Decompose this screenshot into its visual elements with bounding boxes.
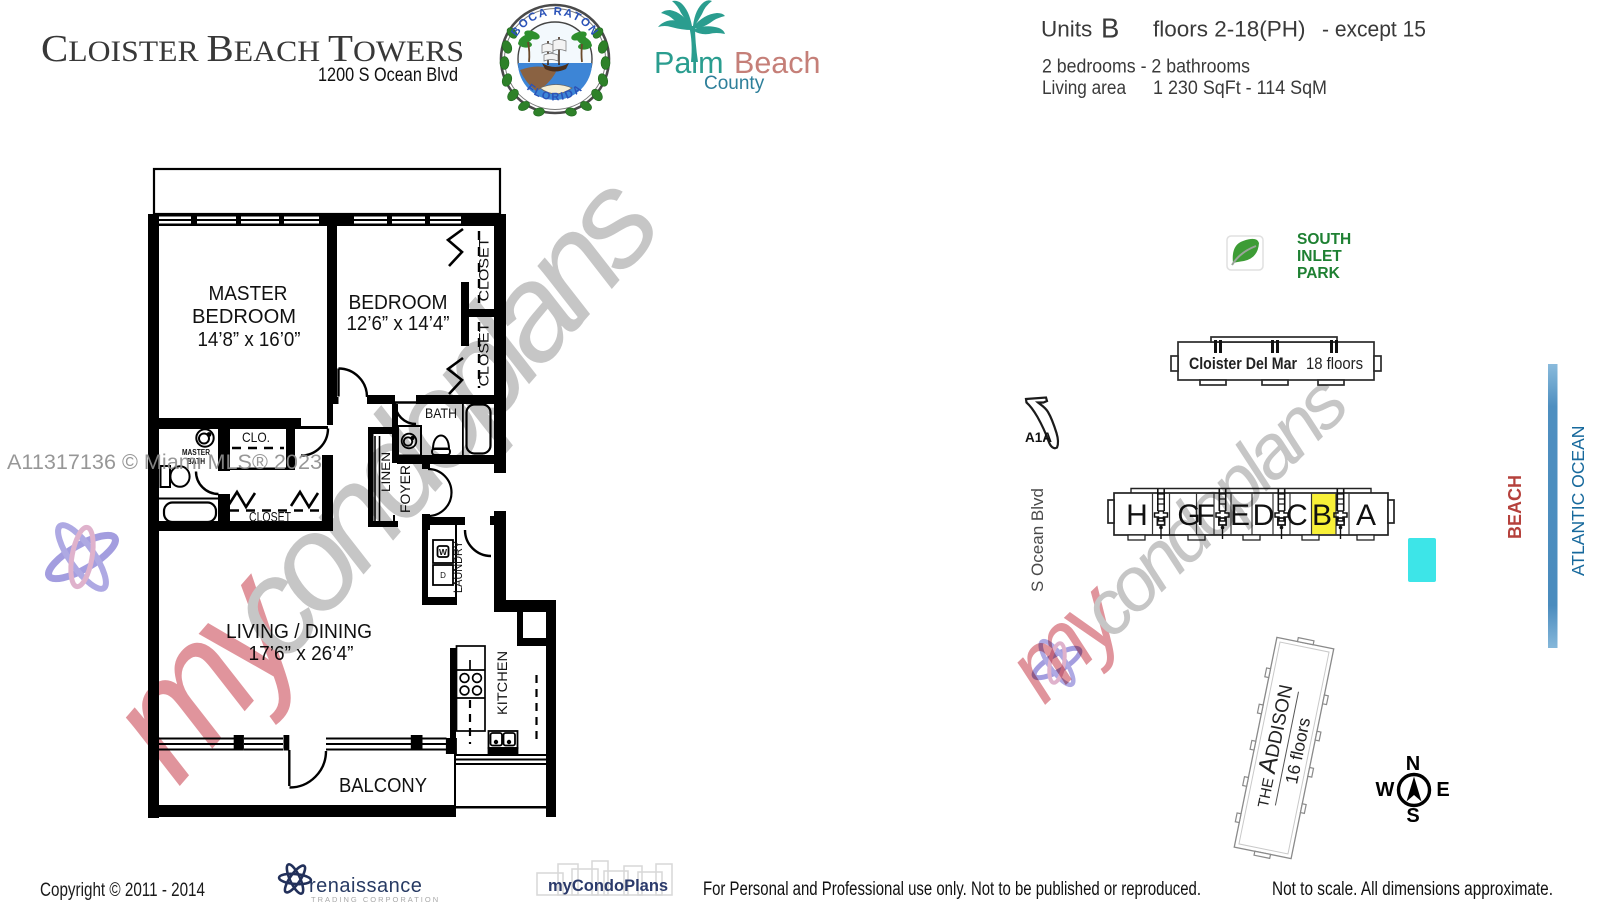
svg-text:BALCONY: BALCONY	[339, 775, 427, 797]
svg-text:CLO.: CLO.	[242, 429, 270, 445]
svg-text:CLOISTER BEACH TOWERS: CLOISTER BEACH TOWERS	[41, 28, 464, 70]
svg-text:renaissance: renaissance	[309, 875, 422, 897]
svg-text:1200 S Ocean Blvd: 1200 S Ocean Blvd	[318, 65, 458, 86]
svg-text:- except 15: - except 15	[1322, 17, 1426, 42]
svg-text:D: D	[440, 571, 446, 580]
svg-text:S: S	[1406, 805, 1419, 827]
svg-text:TRADING CORPORATION: TRADING CORPORATION	[311, 895, 440, 904]
svg-text:PARK: PARK	[1297, 265, 1341, 282]
svg-text:County: County	[704, 73, 765, 94]
svg-text:S Ocean Blvd: S Ocean Blvd	[1028, 488, 1047, 592]
svg-text:2 bedrooms - 2 bathrooms: 2 bedrooms - 2 bathrooms	[1042, 57, 1250, 78]
svg-text:LAUNDRY: LAUNDRY	[451, 541, 465, 593]
svg-text:A: A	[1356, 499, 1376, 532]
svg-text:W: W	[1376, 779, 1395, 801]
svg-text:A11317136 © Miami MLS® 2023: A11317136 © Miami MLS® 2023	[7, 450, 322, 474]
svg-text:INLET: INLET	[1297, 248, 1342, 265]
svg-text:Cloister Del Mar: Cloister Del Mar	[1189, 355, 1297, 373]
svg-text:For Personal and Professional: For Personal and Professional use only. …	[703, 879, 1201, 900]
svg-text:W: W	[439, 547, 448, 557]
svg-text:SOUTH: SOUTH	[1297, 231, 1351, 248]
svg-text:B: B	[1101, 13, 1119, 44]
svg-text:1 230 SqFt - 114 SqM: 1 230 SqFt - 114 SqM	[1153, 78, 1327, 99]
svg-text:B: B	[1312, 499, 1332, 532]
svg-text:Copyright © 2011 - 2014: Copyright © 2011 - 2014	[40, 880, 205, 901]
svg-text:Living area: Living area	[1042, 78, 1126, 99]
svg-text:E: E	[1436, 779, 1449, 801]
svg-text:Not to scale. All dimensions: Not to scale. All dimensions approximate…	[1272, 879, 1553, 900]
svg-text:MASTER: MASTER	[209, 283, 288, 305]
svg-text:N: N	[1406, 753, 1420, 775]
svg-text:18 floors: 18 floors	[1306, 354, 1363, 373]
svg-text:14’8” x 16’0”: 14’8” x 16’0”	[198, 329, 301, 351]
svg-text:A1A: A1A	[1025, 430, 1052, 445]
svg-text:C: C	[1286, 499, 1308, 532]
svg-text:floors 2-18(PH): floors 2-18(PH)	[1153, 17, 1306, 42]
svg-text:KITCHEN: KITCHEN	[494, 651, 510, 715]
svg-text:myCondoPlans: myCondoPlans	[548, 877, 668, 895]
svg-text:BEACH: BEACH	[1505, 475, 1525, 539]
svg-text:ATLANTIC OCEAN: ATLANTIC OCEAN	[1568, 426, 1588, 576]
svg-text:BEDROOM: BEDROOM	[192, 306, 296, 328]
svg-text:Units: Units	[1041, 17, 1092, 42]
